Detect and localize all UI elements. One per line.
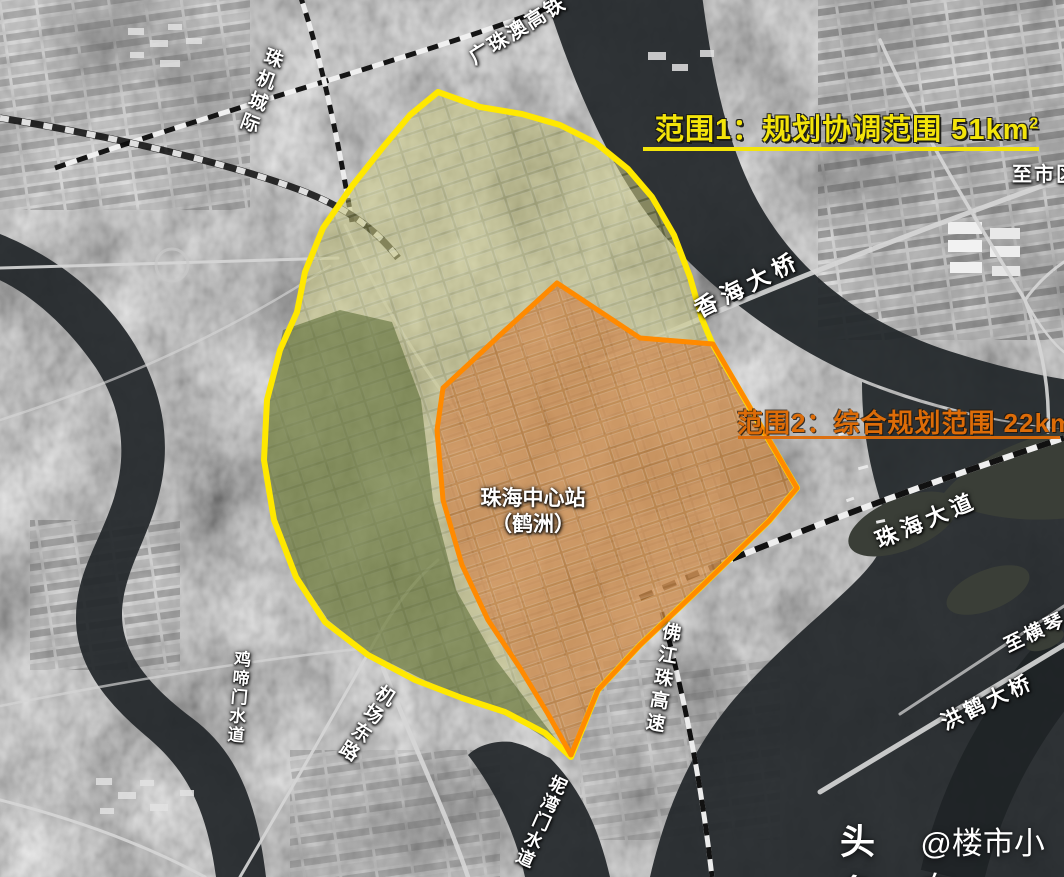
scope1-label: 范围1：规划协调范围 51km2 xyxy=(655,106,1039,148)
satellite-map: 广珠澳高铁 珠机城际 范围1：规划协调范围 51km2 范围2：综合规划范围 2… xyxy=(0,0,1064,877)
watermark-handle: @楼市小向 xyxy=(920,818,1064,877)
direction-label-to-city: 至市区 xyxy=(1012,158,1064,187)
watermark-brand: 头条 xyxy=(840,814,908,877)
scope2-underline xyxy=(738,436,1060,439)
station-subname: （鹤洲） xyxy=(448,512,618,538)
watermark: 头条 @楼市小向 xyxy=(840,814,1064,877)
scope1-underline xyxy=(643,147,1039,151)
station-name: 珠海中心站 xyxy=(448,486,618,512)
station-label: 珠海中心站 （鹤洲） xyxy=(448,486,618,538)
scope2-label: 范围2：综合规划范围 22km2 xyxy=(737,403,1064,440)
